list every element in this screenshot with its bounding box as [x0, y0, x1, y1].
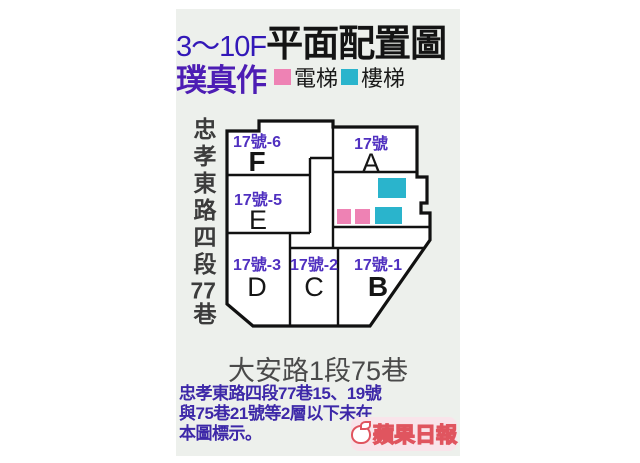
unit-a-letter: A — [362, 148, 380, 178]
apple-icon — [351, 425, 371, 444]
footnote-line-1: 忠孝東路四段77巷15、19號 — [179, 384, 394, 404]
unit-d-letter: D — [247, 272, 267, 302]
stairs-block-upper — [378, 178, 406, 198]
unit-f-letter: F — [248, 146, 265, 177]
logo-text: 蘋果日報 — [373, 419, 457, 449]
apple-daily-logo: 蘋果日報 — [351, 417, 457, 451]
elevator-block-1 — [337, 209, 351, 224]
unit-e-letter: E — [249, 205, 267, 235]
unit-c-letter: C — [304, 272, 324, 302]
street-label-bottom: 大安路1段75巷 — [176, 349, 460, 388]
stairs-block-lower — [375, 207, 402, 224]
elevator-block-2 — [355, 209, 370, 224]
unit-b-letter: B — [368, 271, 388, 302]
